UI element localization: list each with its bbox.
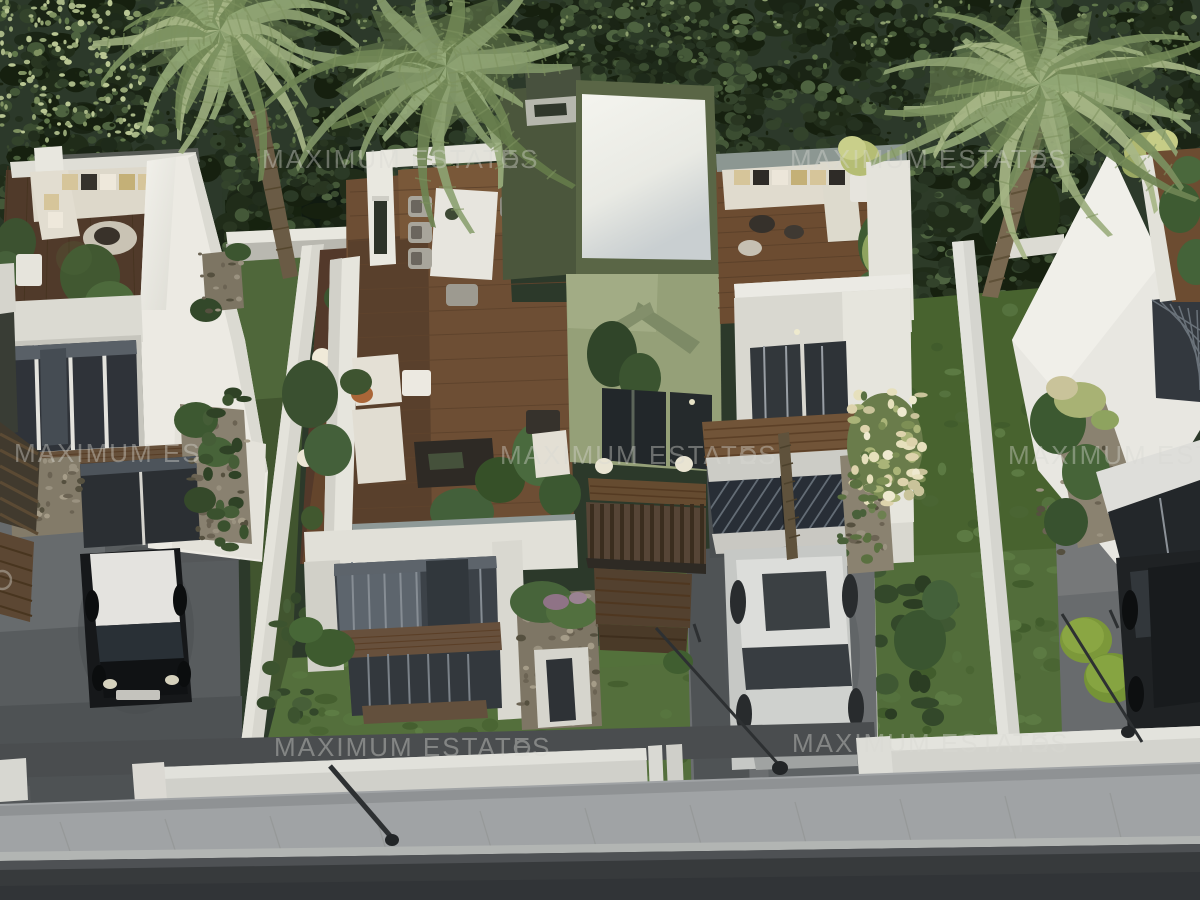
svg-text:MAXIMUM ESTATES: MAXIMUM ESTATES bbox=[790, 144, 1068, 174]
svg-text:MAXIMUM ESTATES: MAXIMUM ESTATES bbox=[274, 732, 552, 762]
svg-text:MAXIMUM ESTATES: MAXIMUM ESTATES bbox=[792, 728, 1070, 758]
svg-text:MAXIMUM ES: MAXIMUM ES bbox=[14, 438, 202, 468]
svg-text:MAXIMUM ESTATES: MAXIMUM ESTATES bbox=[262, 144, 540, 174]
svg-text:MAXIMUM ESTATES: MAXIMUM ESTATES bbox=[500, 440, 778, 470]
svg-text:MAXIMUM ESTATES: MAXIMUM ESTATES bbox=[1008, 440, 1200, 470]
